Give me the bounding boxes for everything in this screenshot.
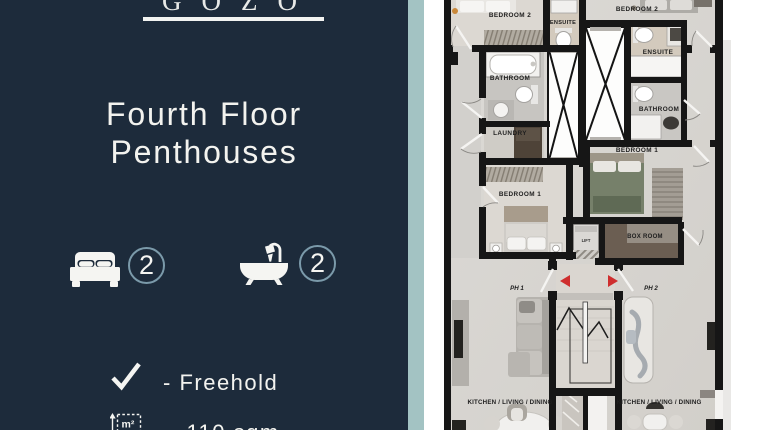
svg-text:LIFT: LIFT [582, 238, 591, 243]
svg-text:KITCHEN / LIVING / DINING: KITCHEN / LIVING / DINING [616, 399, 701, 406]
svg-text:BEDROOM 1: BEDROOM 1 [499, 191, 541, 198]
svg-text:BOX ROOM: BOX ROOM [627, 234, 663, 240]
svg-text:BEDROOM 2: BEDROOM 2 [616, 6, 658, 13]
svg-text:BATHROOM: BATHROOM [639, 106, 679, 113]
svg-text:BEDROOM 2: BEDROOM 2 [489, 12, 531, 19]
svg-text:PH 2: PH 2 [644, 285, 658, 292]
svg-text:PH 1: PH 1 [510, 285, 524, 292]
svg-text:ENSUITE: ENSUITE [550, 20, 576, 26]
svg-text:LAUNDRY: LAUNDRY [493, 130, 527, 137]
svg-text:KITCHEN / LIVING / DINING: KITCHEN / LIVING / DINING [467, 399, 552, 406]
svg-text:BATHROOM: BATHROOM [490, 75, 530, 82]
svg-text:ENSUITE: ENSUITE [643, 49, 674, 56]
svg-text:BEDROOM 1: BEDROOM 1 [616, 147, 658, 154]
svg-text:m²: m² [122, 419, 135, 430]
